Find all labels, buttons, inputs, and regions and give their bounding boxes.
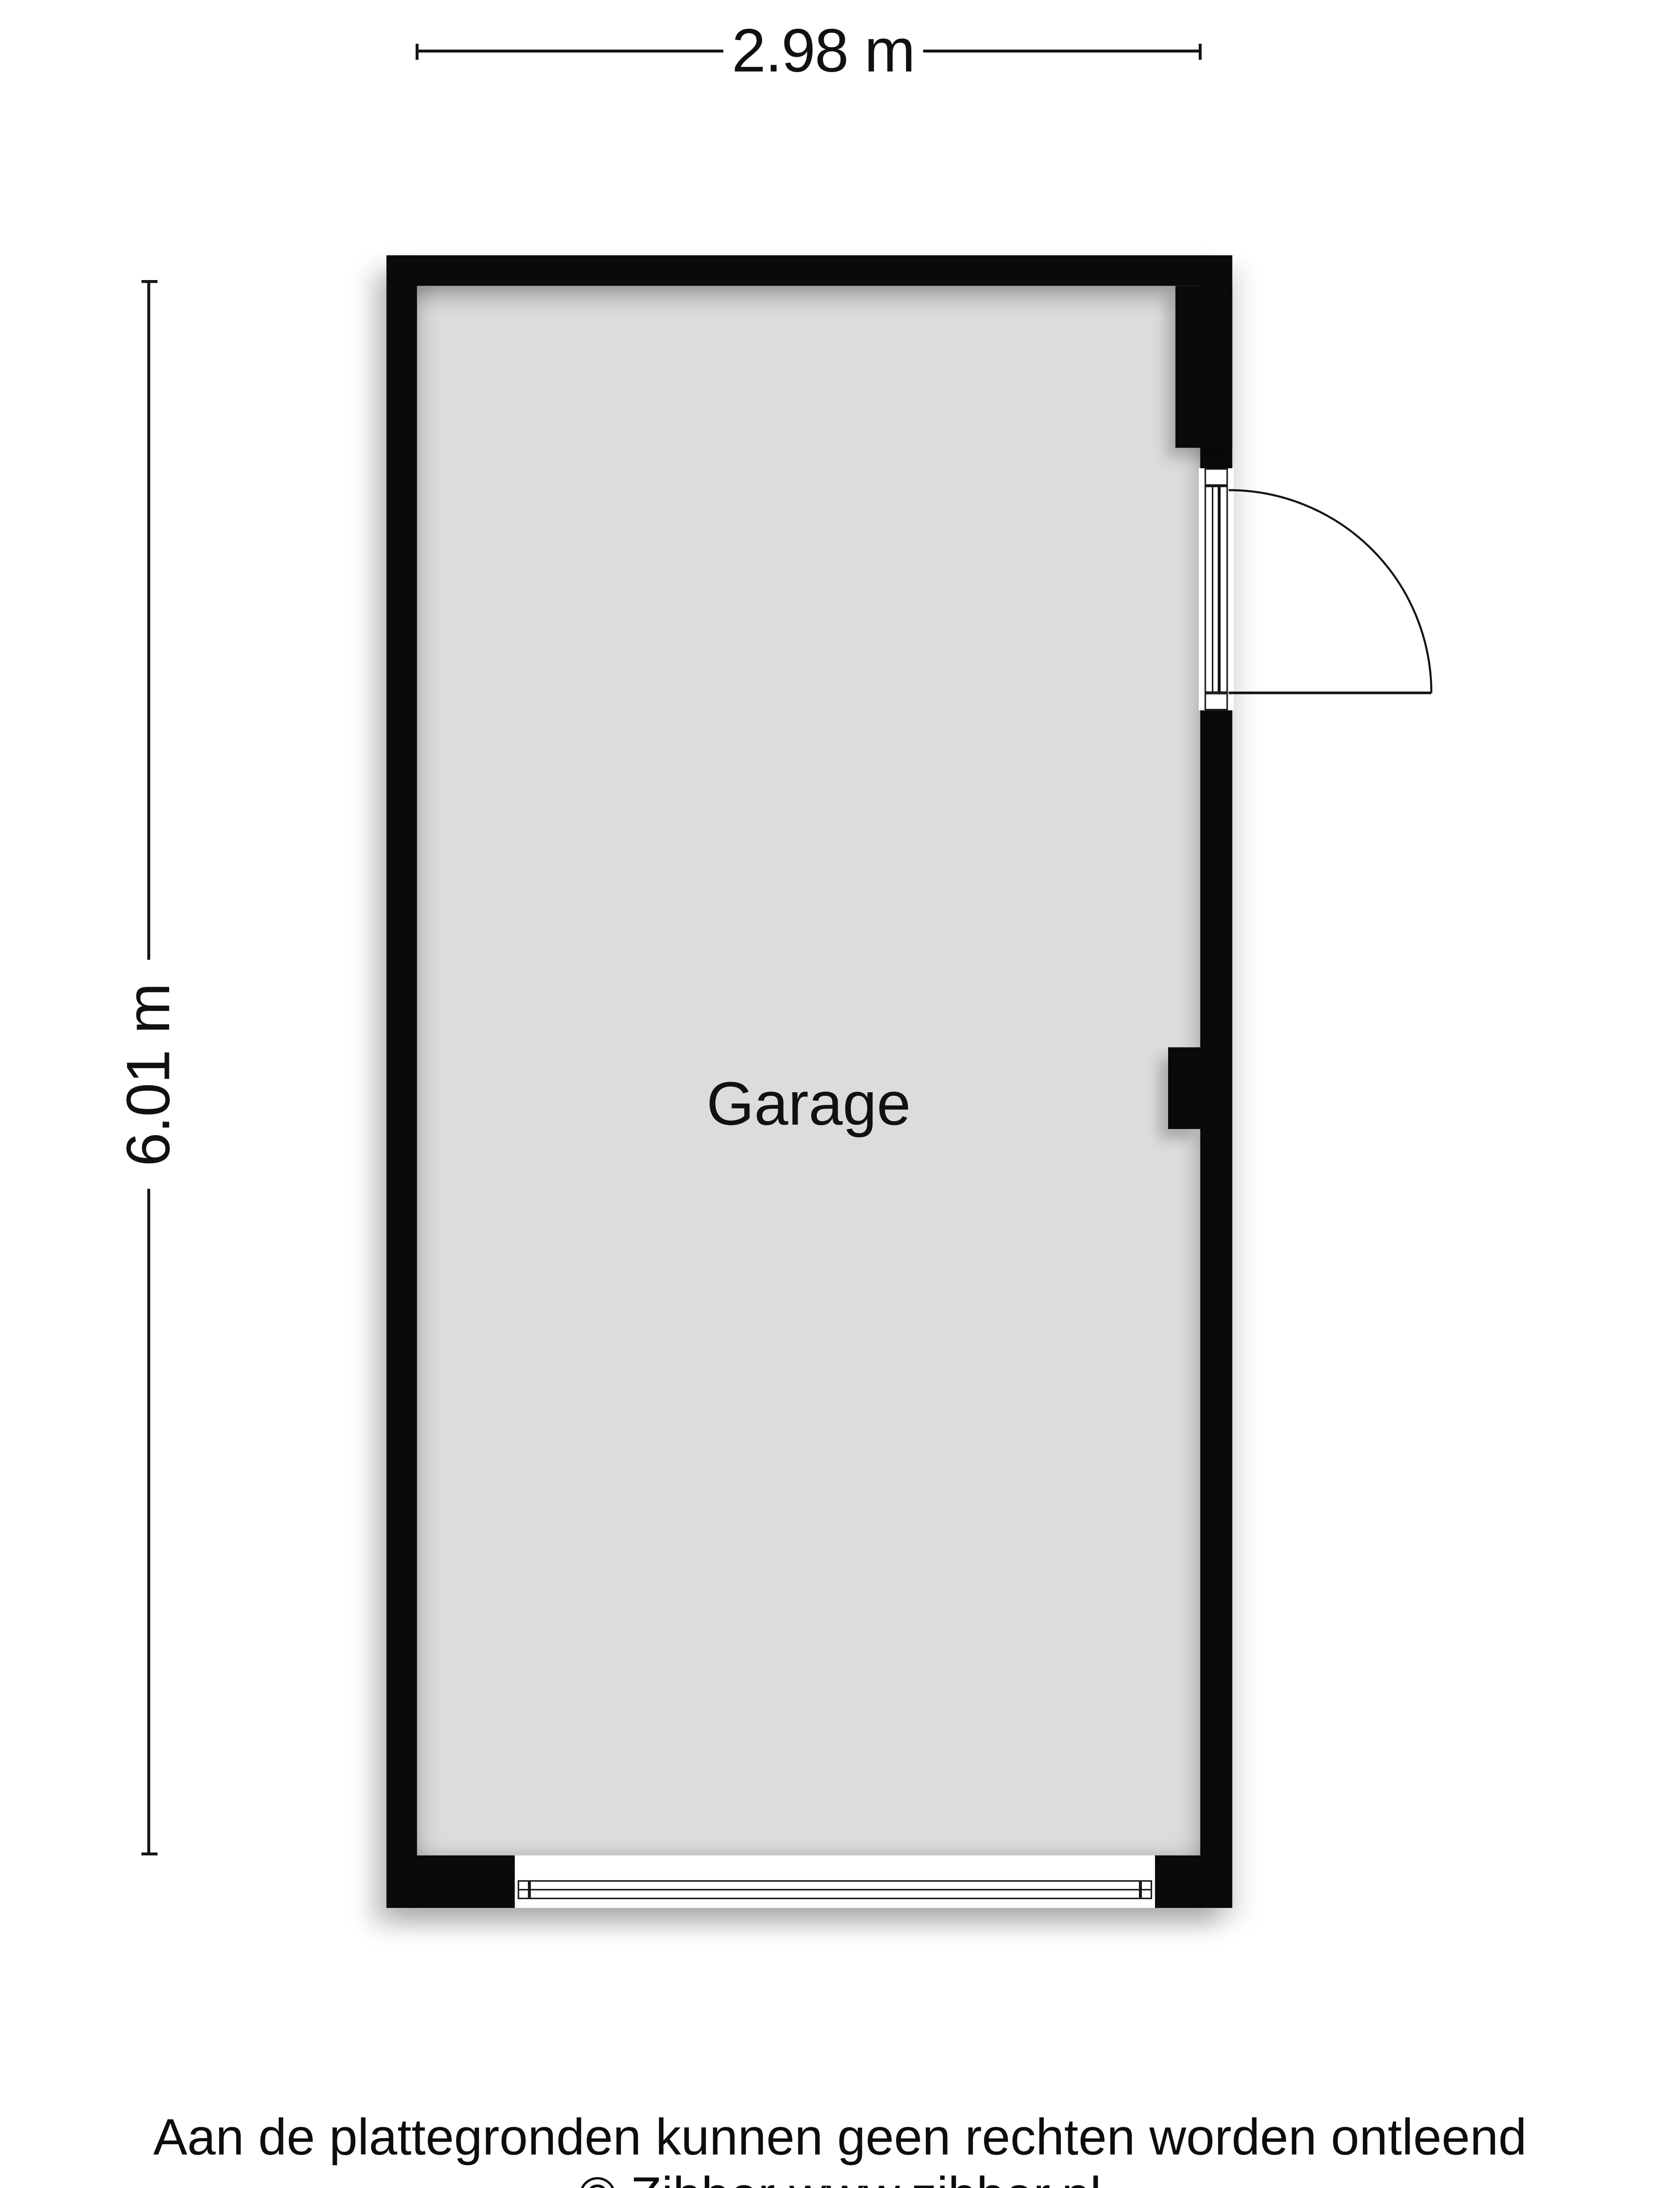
height-dimension-tick-bottom [141,1852,157,1855]
width-dimension-line-left [417,50,723,52]
width-dimension-label: 2.98 m [709,19,938,83]
garage-door-end-tick [528,1882,531,1898]
footer-disclaimer: Aan de plattegronden kunnen geen rechten… [0,2109,1680,2167]
height-dimension-line-bottom [148,1189,150,1854]
height-dimension-label: 6.01 m [117,959,181,1190]
height-dimension-line-top [148,281,150,960]
wall-pier [1176,286,1232,448]
garage-door-midline [519,1888,1151,1890]
door-frame-foot [1204,693,1228,710]
width-dimension-line-right [923,50,1200,52]
height-dimension-tick-top [141,281,157,284]
garage-door-panel [518,1880,1152,1899]
door-opening [1199,468,1234,710]
door-frame-head [1204,468,1228,486]
door-panel-line [1218,487,1221,691]
room-label: Garage [417,1069,1200,1139]
door-panel [1204,486,1228,693]
footer: Aan de plattegronden kunnen geen rechten… [0,2109,1680,2188]
footer-copyright: © Zibber www.zibber.nl [0,2167,1680,2188]
door-panel-line [1211,487,1214,691]
width-dimension-tick-left [416,43,419,59]
garage-door-opening [515,1855,1155,1908]
door-swing-arc [1228,490,1431,693]
garage-door-end-tick [1139,1882,1142,1898]
width-dimension-tick-right [1199,43,1202,59]
floor-plan-page: 2.98 m 6.01 m Garage [0,0,1680,2188]
